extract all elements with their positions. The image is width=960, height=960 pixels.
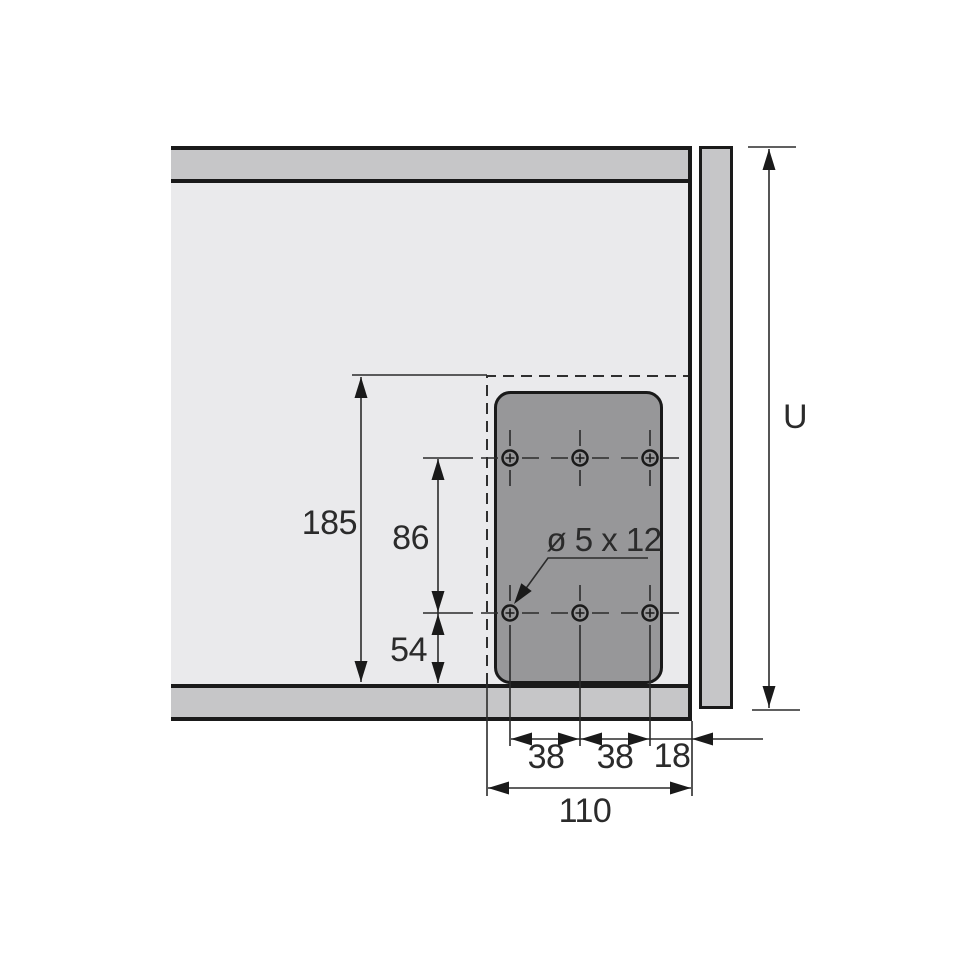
bottom-rail: [171, 686, 690, 719]
dim-54-label: 54: [390, 631, 427, 669]
dim-38-left-label: 38: [528, 738, 565, 776]
dim-86-label: 86: [392, 519, 429, 557]
dim-38-right-label: 38: [597, 738, 634, 776]
dim-110-label: 110: [559, 792, 612, 830]
rear-panel-strip: [701, 148, 732, 708]
dim-u-label: U: [783, 398, 807, 436]
technical-drawing: 185 86 54 38 38 18 110 U ø 5 x 12: [0, 0, 960, 960]
hole-spec-label: ø 5 x 12: [546, 521, 661, 558]
dim-18-label: 18: [654, 737, 691, 775]
mounting-plate-diagram: 185 86 54 38 38 18 110 U ø 5 x 12: [0, 0, 960, 960]
top-rail: [171, 148, 690, 181]
dim-185-label: 185: [302, 504, 357, 542]
